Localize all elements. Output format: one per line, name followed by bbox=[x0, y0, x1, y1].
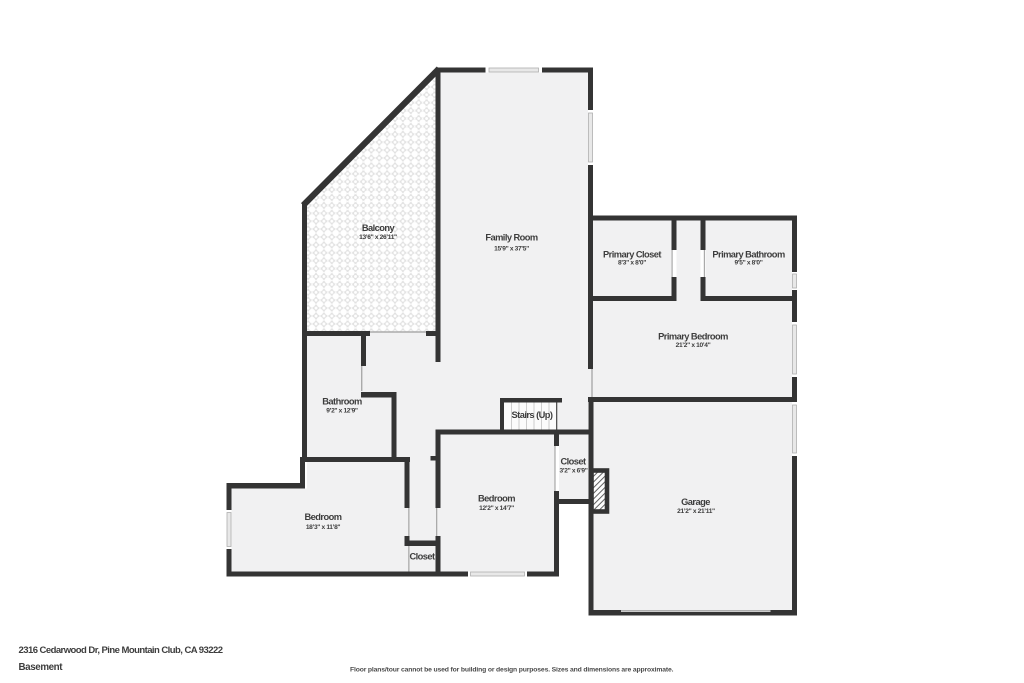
svg-text:Balcony: Balcony bbox=[362, 223, 396, 233]
svg-text:Primary Bedroom: Primary Bedroom bbox=[658, 332, 728, 342]
svg-text:12’2" x 14’7": 12’2" x 14’7" bbox=[479, 505, 514, 512]
svg-text:Family Room: Family Room bbox=[485, 233, 538, 243]
svg-text:Bathroom: Bathroom bbox=[322, 397, 362, 407]
svg-text:3’2" x 6’9": 3’2" x 6’9" bbox=[559, 467, 587, 474]
svg-text:Closet: Closet bbox=[409, 552, 435, 562]
svg-text:9’5" x 8’0": 9’5" x 8’0" bbox=[734, 260, 762, 267]
svg-text:21’2" x 21’11": 21’2" x 21’11" bbox=[677, 508, 715, 515]
svg-text:13’6" x 26’11": 13’6" x 26’11" bbox=[359, 234, 397, 241]
svg-text:8’3" x 8’0": 8’3" x 8’0" bbox=[618, 260, 646, 267]
svg-text:Closet: Closet bbox=[560, 457, 586, 467]
svg-text:Primary Closet: Primary Closet bbox=[603, 249, 661, 259]
svg-text:Bedroom: Bedroom bbox=[305, 512, 342, 522]
svg-text:Garage: Garage bbox=[681, 497, 710, 507]
svg-text:Bedroom: Bedroom bbox=[478, 494, 515, 504]
svg-text:18’3" x 11’8": 18’3" x 11’8" bbox=[306, 524, 341, 531]
svg-text:Floor plans/tour cannot be use: Floor plans/tour cannot be used for buil… bbox=[350, 667, 674, 674]
svg-text:Basement: Basement bbox=[19, 662, 64, 673]
svg-text:21’2" x 10’4": 21’2" x 10’4" bbox=[676, 342, 711, 349]
svg-text:9’2" x 12’9": 9’2" x 12’9" bbox=[326, 408, 358, 415]
svg-text:Stairs (Up): Stairs (Up) bbox=[512, 410, 553, 420]
svg-text:15’9" x 37’5": 15’9" x 37’5" bbox=[494, 246, 529, 253]
svg-text:Primary Bathroom: Primary Bathroom bbox=[712, 249, 785, 259]
svg-text:2316 Cedarwood Dr, Pine Mounta: 2316 Cedarwood Dr, Pine Mountain Club, C… bbox=[19, 645, 223, 656]
